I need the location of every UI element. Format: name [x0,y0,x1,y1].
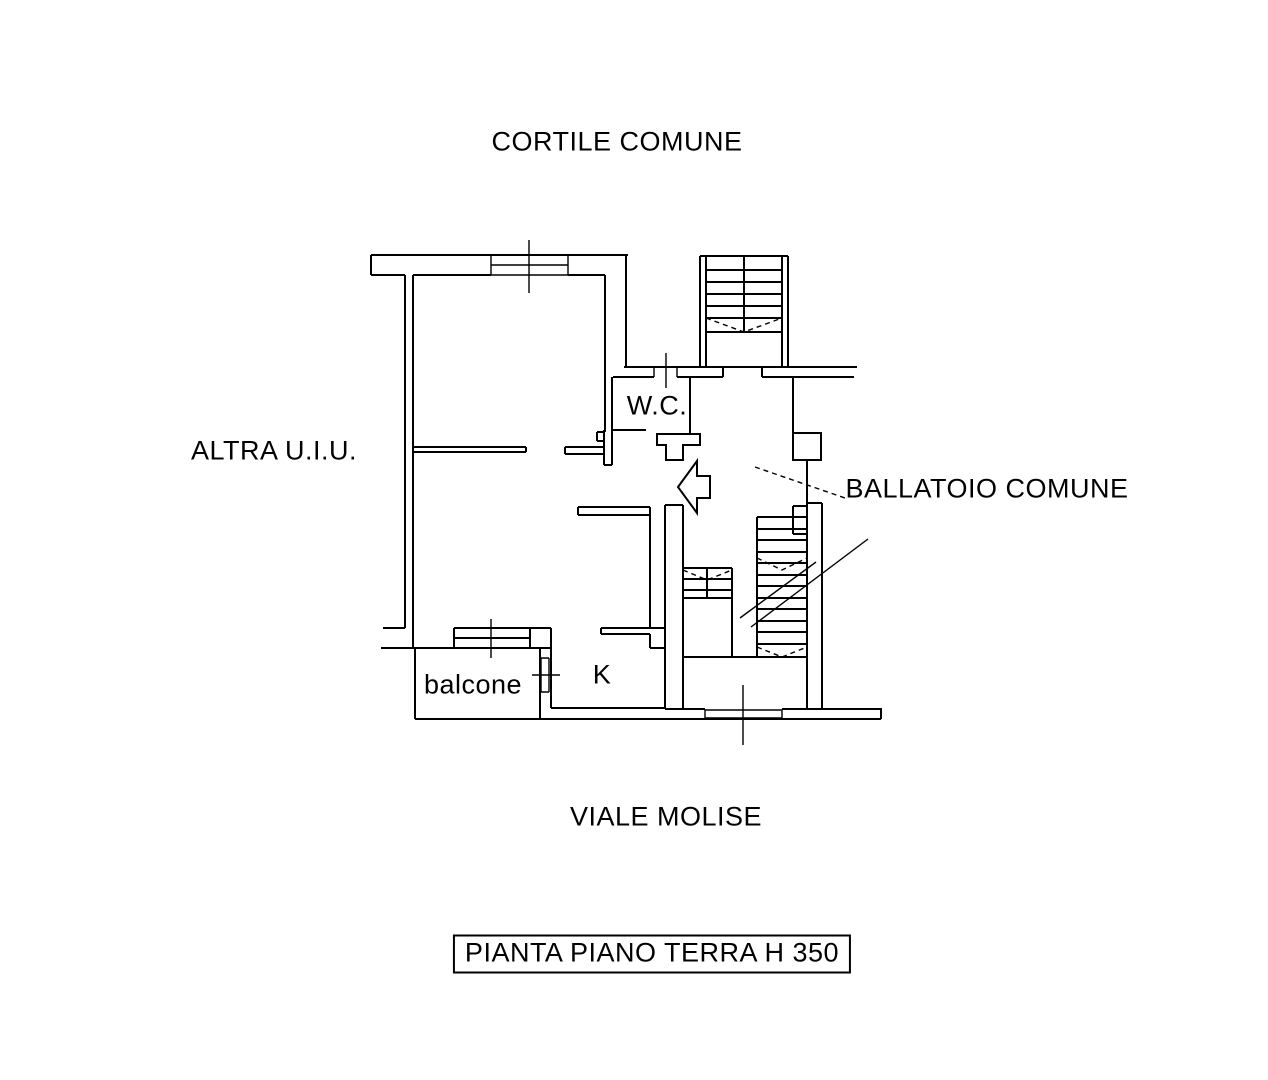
facade-bottom-wall [415,709,882,719]
ballatoio-right-wall [793,377,822,709]
label-kitchen: K [593,660,612,691]
label-cortile-comune: CORTILE COMUNE [491,127,742,158]
floor-plan-page: CORTILE COMUNE ALTRA U.I.U. W.C. BALLATO… [0,0,1268,1080]
main-stair-dash-bottom [757,647,807,657]
hall-stub-wall [578,507,650,515]
wall-left-double [381,275,415,648]
label-altra-uiu: ALTRA U.I.U. [191,436,357,467]
label-balcone: balcone [424,670,522,701]
kitchen-top-wall [601,628,665,648]
floor-plan-drawing [0,0,1268,1080]
walls [371,255,882,719]
label-wc: W.C. [627,391,688,422]
wc-corner-pier [657,434,700,460]
plan-caption: PIANTA PIANO TERRA H 350 [453,935,851,974]
ballatoio-leader-line [755,467,845,498]
windows [491,240,782,745]
room1-bottom-wall [413,447,604,454]
label-viale-molise: VIALE MOLISE [570,802,762,833]
hall-right-wall [650,505,683,709]
label-ballatoio-comune: BALLATOIO COMUNE [845,474,1128,505]
band-north-wall [613,367,857,377]
balcony-window-wall [415,628,551,648]
small-stair [683,568,732,657]
upper-stair-treads [706,256,782,332]
